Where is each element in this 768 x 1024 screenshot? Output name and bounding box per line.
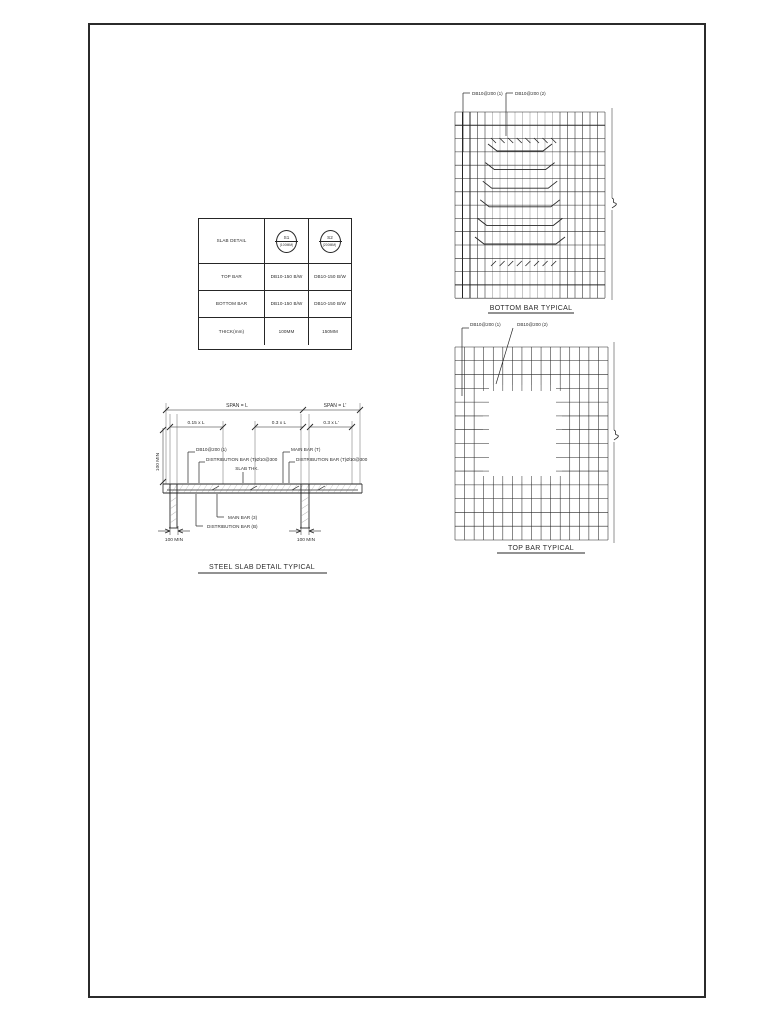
callout-main-bar-top: MAIN BAR (T) xyxy=(291,447,321,452)
top-bar-s2-value: DB10-150 B/W xyxy=(309,264,351,291)
top-bar-s1-value: DB10-150 B/W xyxy=(265,264,309,291)
bubble-mark: S2 xyxy=(327,235,333,240)
row-label-top-bar: TOP BAR xyxy=(199,264,265,291)
table-header-label: SLAB DETAIL xyxy=(199,219,265,264)
bottom-bar-callout-1: DB10@200 (1) xyxy=(472,91,503,96)
dim-03Lp: 0.3 x L' xyxy=(323,420,338,426)
bubble-size: (100MM) xyxy=(280,244,294,248)
dim-015L: 0.15 x L xyxy=(187,420,204,426)
min-bearing-right: 100 MIN xyxy=(297,537,316,543)
min-bearing-left: 100 MIN xyxy=(165,537,184,543)
callout-top-bar: DB10@200 (1) xyxy=(196,447,227,452)
bottom-bar-s2-value: DB10-150 B/W xyxy=(309,291,351,318)
bubble-size: (200MM) xyxy=(323,244,337,248)
dim-03L: 0.3 x L xyxy=(272,420,287,426)
bubble-divider xyxy=(319,241,342,242)
section-title: STEEL SLAB DETAIL TYPICAL xyxy=(209,564,315,571)
bottom-bar-typical-diagram: DB10@200 (1) DB10@200 (2) BOTTOM BAR TYP… xyxy=(440,80,650,325)
thick-s2-value: 150MM xyxy=(309,318,351,345)
min-cover-left-rotated: 100 MIN xyxy=(155,452,161,471)
callout-distribution-right: DISTRIBUTION BAR (T)Ø10@300 xyxy=(296,457,368,462)
bottom-bar-callout-2: DB10@200 (2) xyxy=(515,91,546,96)
callout-distribution-left: DISTRIBUTION BAR (T)Ø10@300 xyxy=(206,457,278,462)
top-bar-callout-2: DB10@200 (2) xyxy=(517,322,548,327)
callout-main-bar-bottom: MAIN BAR (3) xyxy=(228,515,258,520)
bottom-bar-s1-value: DB10-150 B/W xyxy=(265,291,309,318)
slab-marker-s1: S1 (100MM) xyxy=(265,219,309,264)
thick-s1-value: 100MM xyxy=(265,318,309,345)
span-right-dim: SPAN = L' xyxy=(324,403,347,409)
slab-marker-s2: S2 (200MM) xyxy=(309,219,351,264)
top-bar-callout-1: DB10@200 (1) xyxy=(470,322,501,327)
span-left-dim: SPAN = L xyxy=(226,403,248,409)
bubble-divider xyxy=(275,241,298,242)
section-bubble-s2: S2 (200MM) xyxy=(320,230,341,253)
bubble-mark: S1 xyxy=(284,235,290,240)
steel-slab-detail-section: SPAN = L SPAN = L' 0.15 x L 0.3 x L 0.3 … xyxy=(130,390,395,585)
callout-distribution-bottom: DISTRIBUTION BAR (B) xyxy=(207,524,258,529)
row-label-thick: THICK(mm) xyxy=(199,318,265,345)
row-label-bottom-bar: BOTTOM BAR xyxy=(199,291,265,318)
slab-schedule-table: SLAB DETAIL S1 (100MM) S2 (200MM) TOP BA… xyxy=(198,218,352,350)
top-bar-typical-diagram: DB10@200 (1) DB10@200 (2) TOP BAR TYPICA… xyxy=(440,315,655,565)
scanned-drawing-sheet: { "colors": { "ink": "#262626", "light_g… xyxy=(0,0,768,1024)
top-bar-title: TOP BAR TYPICAL xyxy=(508,545,574,552)
bottom-bar-title: BOTTOM BAR TYPICAL xyxy=(490,305,573,312)
section-bubble-s1: S1 (100MM) xyxy=(276,230,297,253)
